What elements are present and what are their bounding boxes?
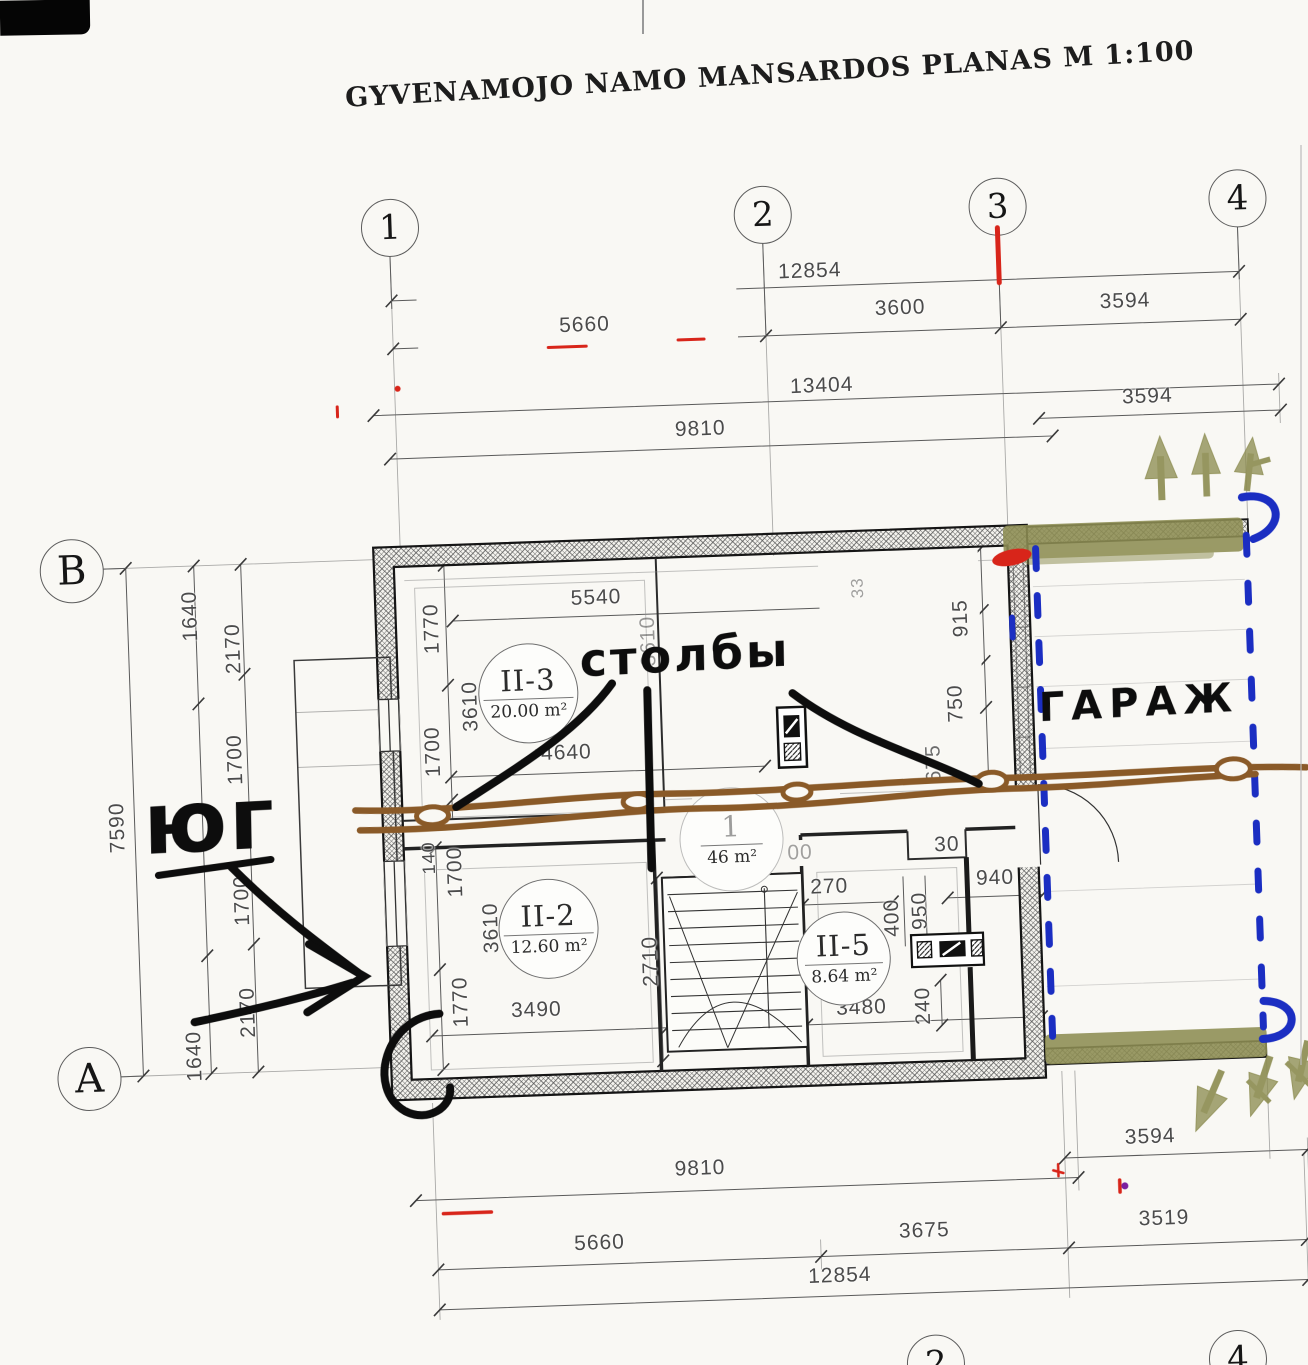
plan-sheet: GYVENAMOJO NAMO MANSARDOS PLANAS M 1:100…: [0, 0, 1308, 1365]
blue-dashed-line-left: [1036, 549, 1053, 1037]
blue-small-dash: [1012, 617, 1013, 637]
scan-edge-line: [1300, 145, 1302, 1065]
stolby-arrow-right: [792, 687, 978, 790]
scan-corner-black: [0, 0, 90, 36]
brown-line: [355, 756, 1308, 831]
stolby-arrow-left: [452, 683, 616, 807]
scan-fold-line: [642, 0, 644, 34]
annotation-south: юг: [143, 768, 277, 875]
purple-dot: [1121, 1182, 1128, 1189]
stolby-arrow-middle: [645, 690, 653, 868]
annotation-stolby: столбы: [579, 622, 791, 687]
blue-dashed-line-right: [1246, 535, 1263, 1027]
scanned-floor-plan-page: GYVENAMOJO NAMO MANSARDOS PLANAS M 1:100…: [0, 0, 1308, 1365]
black-marker-strokes: [152, 671, 989, 1124]
red-pen-marks: [332, 225, 1120, 1219]
south-hook: [382, 1013, 451, 1116]
